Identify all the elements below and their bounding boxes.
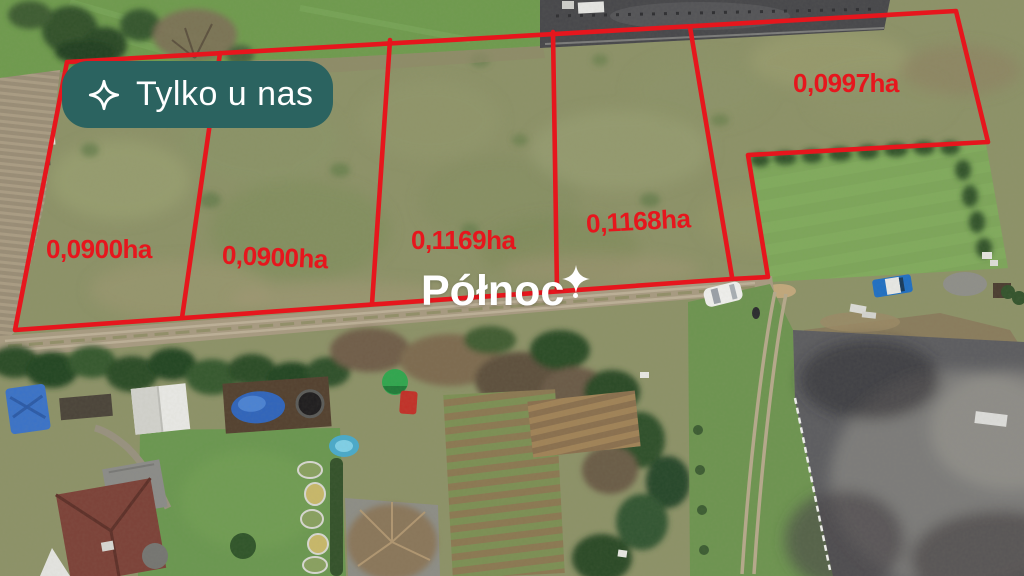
plot-area-label-3: 0,1169ha [411, 225, 515, 256]
badge-label: Tylko u nas [136, 75, 313, 114]
plot-area-label-1: 0,0900ha [46, 234, 152, 265]
plot-area-label-5: 0,0997ha [793, 68, 899, 99]
plot-area-label-4: 0,1168ha [585, 203, 691, 239]
sparkle-icon [88, 79, 120, 111]
exclusive-badge: Tylko u nas [62, 61, 333, 128]
brand-watermark: Północ [421, 267, 564, 316]
aerial-photo: Tylko u nas 0,0900ha 0,0900ha 0,1169ha 0… [0, 0, 1024, 576]
plot-area-label-2: 0,0900ha [221, 240, 328, 276]
watermark-text: Północ [421, 267, 564, 315]
